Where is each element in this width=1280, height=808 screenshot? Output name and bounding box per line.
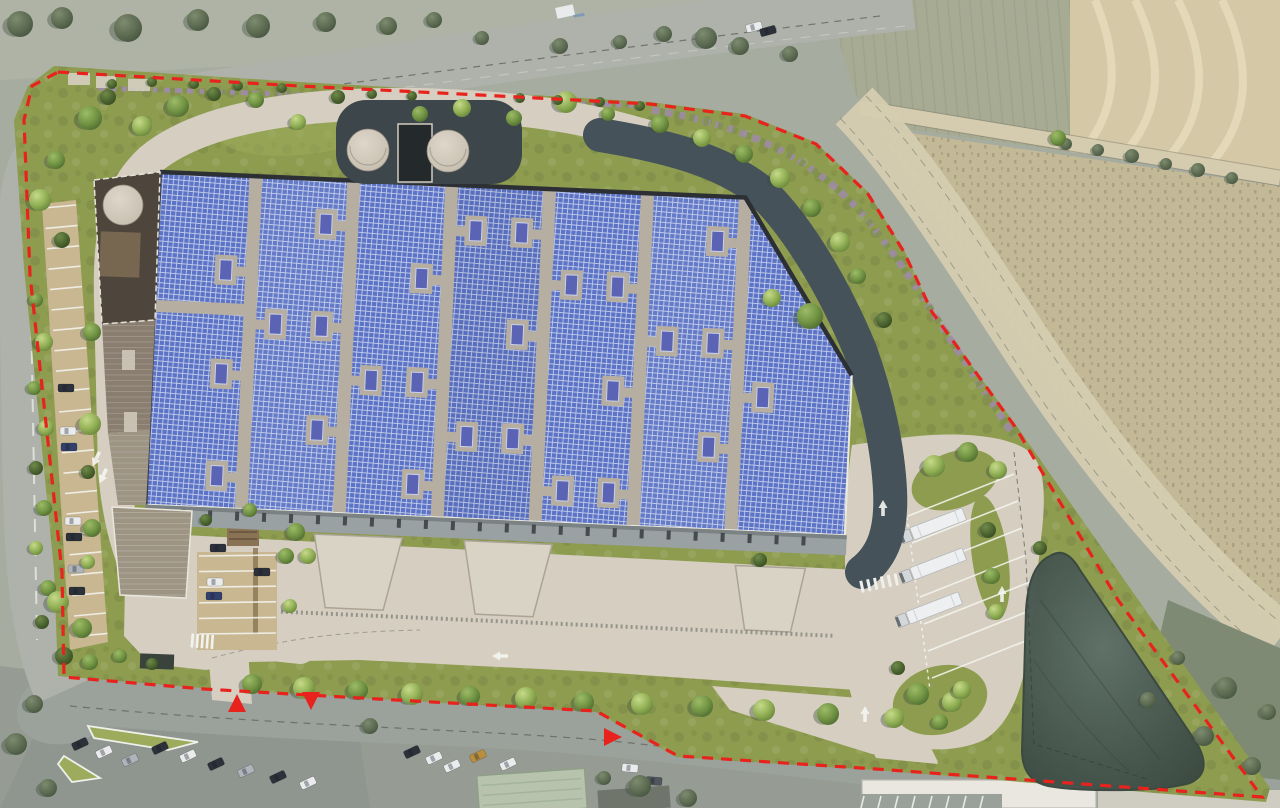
skylight-glass (556, 481, 569, 502)
tree (100, 89, 116, 105)
car-windshield (215, 545, 219, 551)
sprinkler-tanks (336, 100, 522, 184)
tree (146, 658, 158, 670)
skylight-glass (319, 214, 332, 235)
car-windshield (73, 566, 77, 572)
dock-door (316, 515, 320, 524)
skylight-glass (511, 324, 524, 345)
skylight-glass (515, 223, 528, 244)
tree (876, 312, 892, 328)
skylight-glass (210, 466, 223, 487)
car (254, 568, 270, 576)
skylight-glass (707, 333, 720, 354)
tree (379, 17, 397, 35)
tree (83, 323, 101, 341)
dock-door (666, 530, 670, 539)
tree (246, 14, 270, 38)
skylight-glass (415, 268, 428, 289)
tree (506, 110, 522, 126)
skylight-glass (310, 420, 323, 441)
tree (475, 31, 489, 45)
skylight-glass (611, 277, 624, 298)
skylight-glass (606, 381, 619, 402)
car-windshield (650, 778, 655, 784)
tree (331, 90, 345, 104)
tree (35, 615, 49, 629)
tree (79, 413, 101, 435)
stall-line (199, 602, 276, 603)
car (207, 578, 223, 586)
dock-door (720, 533, 724, 542)
site-plan-rendering (0, 0, 1280, 808)
tree (830, 232, 850, 252)
dock-door (774, 535, 778, 544)
tree (735, 145, 753, 163)
tree (782, 46, 798, 62)
tree (283, 599, 297, 613)
tree (989, 461, 1007, 479)
skylight-glass (411, 372, 424, 393)
tree (1125, 149, 1139, 163)
car-windshield (74, 588, 78, 594)
tree (763, 289, 781, 307)
dock-door (397, 519, 401, 528)
stall-line (199, 617, 276, 618)
tree (362, 718, 378, 734)
tree (693, 129, 711, 147)
tree (83, 519, 101, 537)
skylight-glass (661, 331, 674, 352)
tree (51, 7, 73, 29)
dock-door (424, 520, 428, 529)
tree (243, 503, 257, 517)
tree (1050, 130, 1066, 146)
dock-door (289, 514, 293, 523)
dock-door (505, 523, 509, 532)
dock-door (639, 529, 643, 538)
car (622, 763, 639, 772)
skylight-glass (460, 426, 473, 447)
tree (691, 695, 713, 717)
tree (29, 541, 43, 555)
tree (1140, 692, 1156, 708)
dock-door (559, 526, 563, 535)
tree (78, 106, 102, 130)
tree (850, 268, 866, 284)
tree (167, 95, 189, 117)
car-windshield (66, 444, 70, 450)
car (69, 587, 85, 595)
dock-door (693, 532, 697, 541)
tree (817, 703, 839, 725)
skylight-glass (506, 428, 519, 449)
tree (81, 465, 95, 479)
car (58, 384, 74, 392)
tree (300, 548, 316, 564)
tree (923, 455, 945, 477)
skylight-glass (602, 483, 615, 504)
tree (1033, 541, 1047, 555)
car (61, 443, 77, 451)
dock-door (478, 522, 482, 531)
tree (412, 106, 428, 122)
tree (597, 771, 611, 785)
tree (797, 303, 823, 329)
tree (1260, 704, 1276, 720)
tree (132, 116, 152, 136)
tree (107, 79, 117, 89)
skylight-glass (702, 437, 715, 458)
car-windshield (63, 385, 67, 391)
tree (695, 27, 717, 49)
car-windshield (259, 569, 263, 575)
tree (631, 693, 653, 715)
tree (753, 553, 767, 567)
car (65, 517, 81, 525)
dock-door (586, 527, 590, 536)
tree (82, 654, 98, 670)
skylight-glass (269, 314, 282, 335)
skylight-glass (565, 275, 578, 296)
dock-door (613, 528, 617, 537)
tree (287, 523, 305, 541)
tree (187, 9, 209, 31)
office-tank (103, 185, 143, 225)
skylight-glass (315, 316, 328, 337)
tree (891, 661, 905, 675)
tree (1215, 677, 1237, 699)
tree (884, 708, 904, 728)
tree (1092, 144, 1104, 156)
tree (316, 12, 336, 32)
site-plan-canvas (0, 0, 1280, 808)
tree (7, 11, 33, 37)
tree (453, 99, 471, 117)
tree (552, 38, 568, 54)
car-windshield (65, 428, 69, 434)
tree (932, 714, 948, 730)
stall-line (199, 555, 276, 556)
car-windshield (211, 593, 215, 599)
tree (54, 232, 70, 248)
tree (248, 92, 264, 108)
tree (629, 775, 651, 797)
dock-door (451, 521, 455, 530)
car (66, 533, 82, 541)
tree (613, 35, 627, 49)
tree (980, 522, 996, 538)
tree (25, 695, 43, 713)
tree (47, 591, 69, 613)
tree (656, 26, 672, 42)
dock-door (370, 517, 374, 526)
dock-door (532, 525, 536, 534)
tree (953, 681, 971, 699)
tree (770, 168, 790, 188)
green-roof-building (477, 768, 588, 808)
tree (81, 555, 95, 569)
tree (988, 604, 1004, 620)
skylight-glass (406, 474, 419, 495)
tree (72, 618, 92, 638)
tree (426, 12, 442, 28)
tree (207, 87, 221, 101)
car (210, 544, 226, 552)
car-windshield (212, 579, 216, 585)
skylight-glass (365, 370, 378, 391)
tree (1160, 158, 1172, 170)
tree (958, 442, 978, 462)
skylight-glass (469, 221, 482, 242)
tree (803, 199, 821, 217)
tree (114, 14, 142, 42)
dock-door (343, 516, 347, 525)
car (60, 427, 76, 435)
tree (907, 683, 929, 705)
tree (29, 189, 51, 211)
dock-door (747, 534, 751, 543)
dock-door (801, 536, 805, 545)
tree (1226, 172, 1238, 184)
skylight-glass (711, 231, 724, 252)
dock-door (262, 513, 266, 522)
tree (278, 548, 294, 564)
tree (39, 779, 57, 797)
tree (36, 500, 52, 516)
office-roof-notch (99, 231, 141, 277)
tree (1191, 163, 1205, 177)
tree (200, 514, 212, 526)
site-entrance-drive[interactable] (208, 648, 252, 704)
car-windshield (70, 518, 74, 524)
stall-line (199, 633, 276, 634)
tree (290, 114, 306, 130)
car-windshield (626, 765, 631, 771)
tree (731, 37, 749, 55)
car-windshield (71, 534, 75, 540)
tree (113, 649, 127, 663)
skylight-glass (756, 387, 769, 408)
tree (601, 107, 615, 121)
skylight-glass (219, 260, 232, 281)
tree (29, 461, 43, 475)
tree (984, 568, 1000, 584)
dock-door (235, 512, 239, 521)
car (206, 592, 222, 600)
stall-line (199, 586, 276, 587)
tree (5, 733, 27, 755)
tree (47, 151, 65, 169)
tree (679, 789, 697, 807)
tree (1171, 651, 1185, 665)
skylight-glass (215, 364, 228, 385)
tree (27, 381, 41, 395)
tree (651, 115, 669, 133)
tree (753, 699, 775, 721)
tree (277, 83, 287, 93)
